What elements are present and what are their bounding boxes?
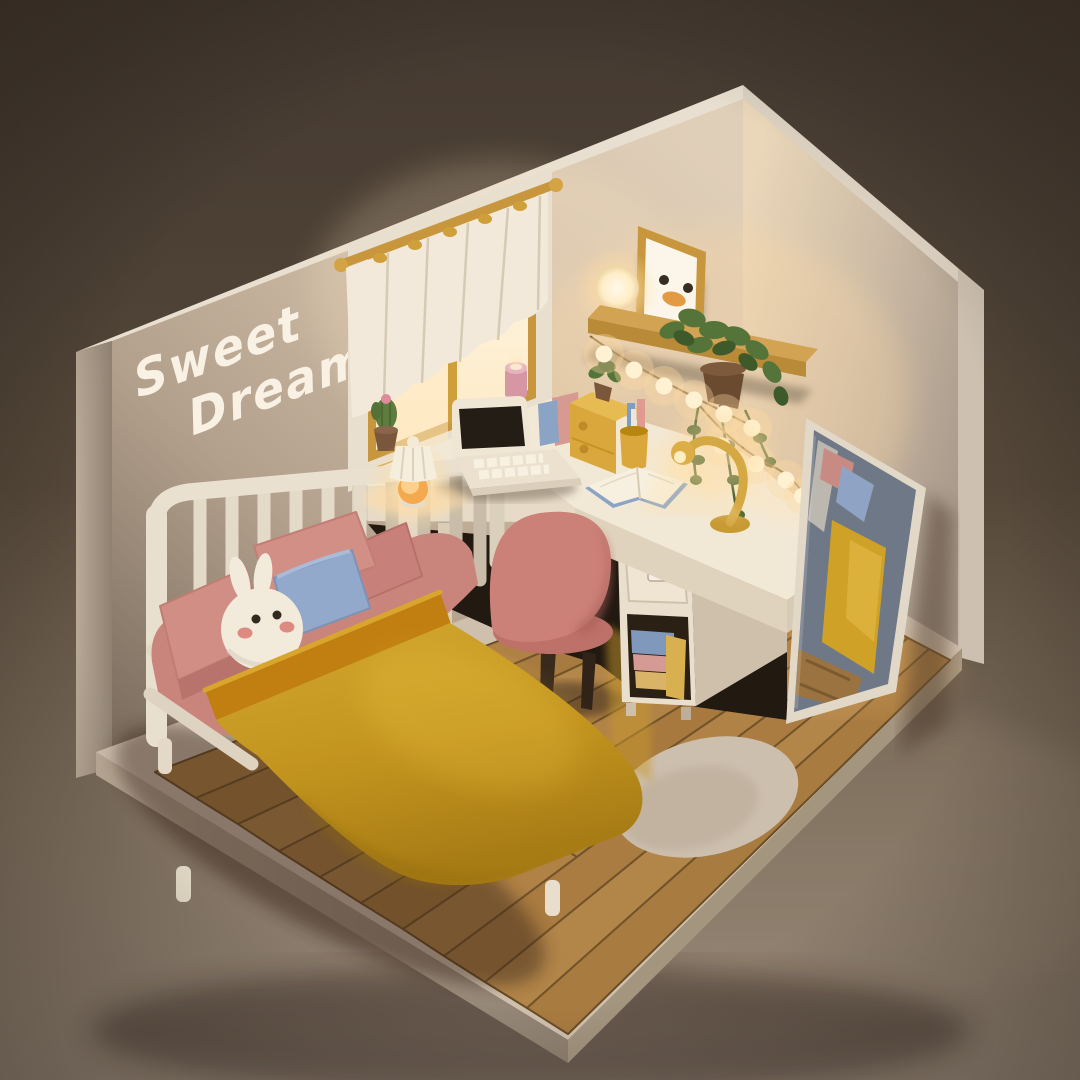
isometric-bedroom-render: Sweet Dream	[0, 0, 1080, 1080]
vignette-overlay	[0, 0, 1080, 1080]
